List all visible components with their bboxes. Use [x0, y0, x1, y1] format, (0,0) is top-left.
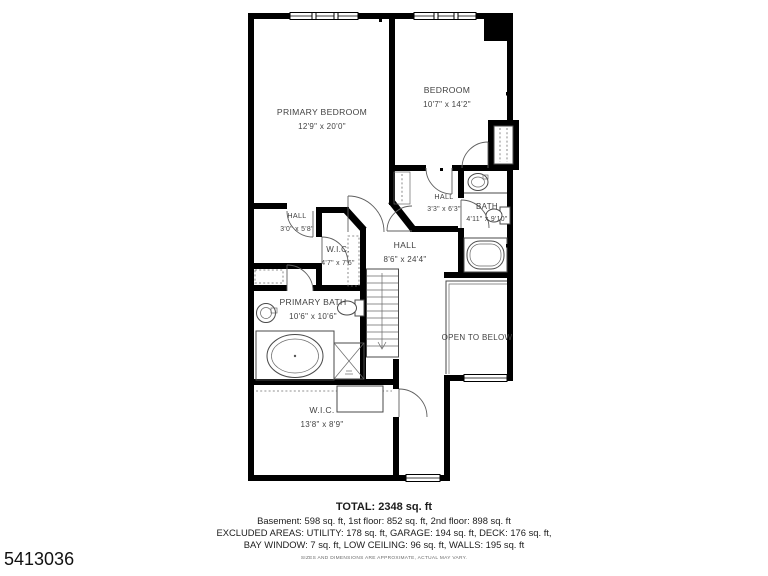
staircase [367, 269, 399, 357]
room-dims-primary-bath: 10'6" x 10'6" [289, 312, 337, 321]
excluded-areas-text-2: BAY WINDOW: 7 sq. ft, LOW CEILING: 96 sq… [0, 539, 768, 550]
primary-bath-shower [334, 343, 364, 379]
window-top-left [290, 13, 358, 20]
window-bottom [406, 475, 440, 482]
room-dims-hall-main: 8'6" x 24'4" [383, 255, 426, 264]
bedroom-door [426, 168, 452, 194]
primary-bath-sink [257, 304, 278, 323]
floorplan-svg: PRIMARY BEDROOM 12'9" x 20'0" BEDROOM 10… [0, 0, 768, 576]
room-dims-bedroom: 10'7" x 14'2" [423, 100, 471, 109]
room-dims-hall-small: 3'3" x 6'3" [427, 206, 461, 213]
room-label-bath: BATH [476, 202, 498, 211]
window-open-below [464, 375, 507, 382]
room-label-wic-bottom: W.I.C. [309, 405, 334, 415]
excluded-areas-text: EXCLUDED AREAS: UTILITY: 178 sq. ft, GAR… [0, 527, 768, 538]
window-top-right [414, 13, 476, 20]
primary-bath-tub [256, 331, 334, 380]
bedroom-closet-door [462, 142, 488, 168]
room-label-bedroom: BEDROOM [424, 85, 471, 95]
open-to-below-rail [446, 281, 507, 374]
linen-closet-shelves [255, 270, 283, 283]
room-label-primary-bedroom: PRIMARY BEDROOM [277, 107, 367, 117]
wic-dresser [337, 386, 383, 412]
listing-id: 5413036 [4, 549, 74, 570]
wic-bottom-door [399, 389, 427, 417]
room-dims-wic-bottom: 13'8" x 8'9" [300, 420, 343, 429]
room-dims-primary-bedroom: 12'9" x 20'0" [298, 122, 346, 131]
room-label-wic-mid: W.I.C. [326, 245, 350, 254]
room-dims-bath: 4'11" x 9'10" [466, 216, 507, 223]
room-label-hall-left: HALL [287, 211, 306, 220]
room-label-open-to-below: OPEN TO BELOW [442, 333, 513, 342]
room-dims-hall-left: 3'0" x 5'8" [280, 226, 314, 233]
disclaimer-text: SIZES AND DIMENSIONS ARE APPROXIMATE, AC… [0, 556, 768, 561]
bath-sink [468, 174, 488, 191]
room-dims-wic-mid: 4'7" x 7'6" [321, 260, 355, 267]
hall-closet-shelving [394, 172, 410, 204]
floorplan-page: PRIMARY BEDROOM 12'9" x 20'0" BEDROOM 10… [0, 0, 768, 576]
room-label-primary-bath: PRIMARY BATH [279, 297, 346, 307]
bath-tub [464, 238, 507, 272]
bedroom-closet-shelving [494, 126, 513, 164]
floor-areas-text: Basement: 598 sq. ft, 1st floor: 852 sq.… [0, 515, 768, 526]
room-label-hall-main: HALL [394, 240, 417, 250]
total-area-text: TOTAL: 2348 sq. ft [0, 501, 768, 513]
room-label-hall-small: HALL [434, 192, 453, 201]
